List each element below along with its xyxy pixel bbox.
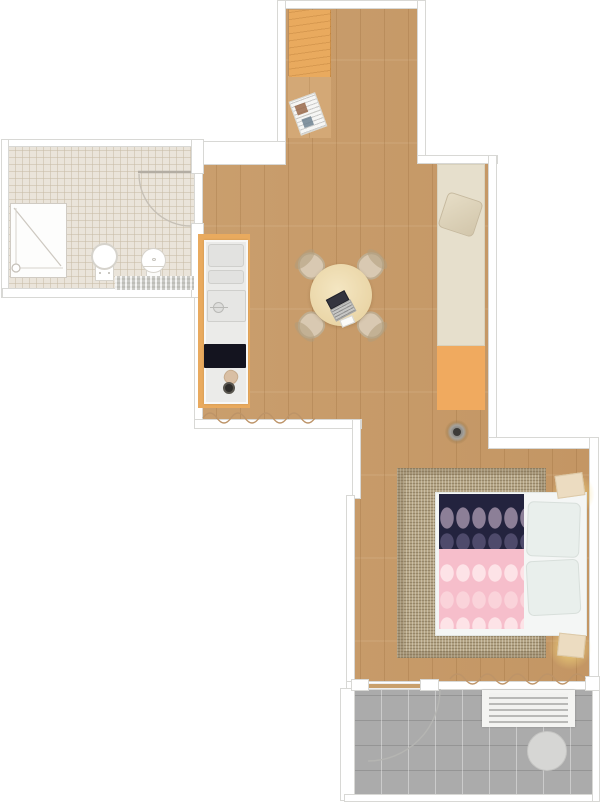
wall-passage-left <box>352 419 361 499</box>
toilet-bowl[interactable] <box>91 243 118 270</box>
floor-outlet[interactable] <box>445 420 469 444</box>
floor-plan-canvas <box>0 0 600 808</box>
wall-balcony-bottom <box>344 794 600 802</box>
door-post-3 <box>585 676 600 691</box>
blanket-pink[interactable] <box>439 549 524 629</box>
slatted-bench[interactable] <box>482 690 575 727</box>
daybed-base[interactable] <box>437 346 485 410</box>
wall-living-bottom <box>194 419 362 429</box>
wall-living-right <box>488 155 497 445</box>
toilet-bolt-right <box>108 272 110 274</box>
balcony-door-threshold <box>369 683 421 689</box>
wall-balcony-right <box>592 681 600 802</box>
blanket-navy[interactable] <box>439 494 524 549</box>
balcony-table[interactable] <box>527 731 567 771</box>
wall-bath-top <box>2 139 196 147</box>
bath-mat[interactable] <box>115 276 194 290</box>
pot[interactable] <box>223 382 235 394</box>
nightstand-bottom[interactable] <box>557 633 586 659</box>
bed-pillow-bottom[interactable] <box>526 559 582 617</box>
bed-pillow-top[interactable] <box>526 501 581 558</box>
wall-top <box>277 0 426 9</box>
sink-chord-line <box>143 266 164 267</box>
stove-cooktop[interactable] <box>204 344 246 368</box>
daybed-cushion[interactable] <box>437 164 485 346</box>
door-post-1 <box>351 679 369 691</box>
wall-bedroom-left <box>346 495 355 691</box>
kitchen-faucet-line <box>210 307 228 308</box>
wall-balcony-left <box>340 688 355 801</box>
wall-entry-bath-chunk <box>196 141 286 165</box>
toilet-bolt-left <box>99 272 101 274</box>
bathroom-sink[interactable] <box>141 248 166 273</box>
wall-bath-right-upper <box>191 139 204 174</box>
wall-living-top-right <box>417 155 498 164</box>
wall-entry-left <box>277 0 286 146</box>
nightstand-top[interactable] <box>555 472 586 499</box>
kitchen-sink[interactable] <box>207 290 246 322</box>
fridge-top[interactable] <box>208 244 244 267</box>
wall-bedroom-top <box>488 437 599 449</box>
door-post-2 <box>420 679 439 691</box>
sink-faucet-hole <box>152 258 156 261</box>
newspaper-photo-2 <box>302 116 314 128</box>
wardrobe[interactable] <box>289 10 331 77</box>
drawer-top[interactable] <box>208 270 244 284</box>
wall-bath-left <box>1 139 9 298</box>
floor-outlet-center <box>453 428 461 436</box>
shower-tray[interactable] <box>10 203 67 278</box>
wall-entry-right <box>417 0 426 159</box>
